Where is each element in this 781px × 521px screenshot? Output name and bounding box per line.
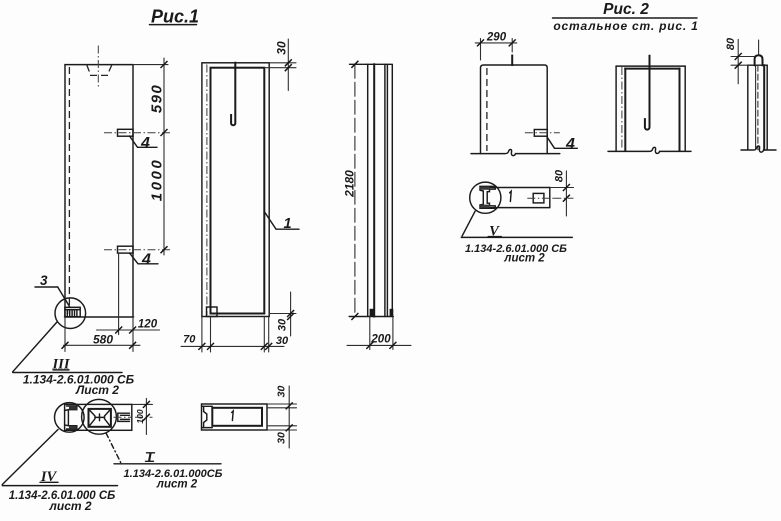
svg-text:80: 80 (554, 169, 566, 182)
svg-text:590: 590 (149, 84, 166, 113)
svg-text:30: 30 (276, 432, 288, 444)
svg-text:4: 4 (565, 136, 575, 153)
svg-text:Рис.1: Рис.1 (151, 7, 199, 27)
svg-text:580: 580 (93, 333, 113, 347)
svg-text:1000: 1000 (149, 158, 166, 201)
svg-text:30: 30 (275, 41, 289, 55)
svg-text:Лист 2: Лист 2 (75, 383, 119, 397)
svg-text:Рис. 2: Рис. 2 (603, 1, 649, 18)
svg-text:70: 70 (183, 334, 196, 346)
svg-text:лист 2: лист 2 (48, 499, 91, 513)
svg-text:290: 290 (486, 32, 507, 44)
svg-text:30: 30 (276, 335, 289, 347)
svg-text:80: 80 (725, 37, 737, 50)
svg-text:лист 2: лист 2 (503, 253, 545, 265)
svg-text:лист 2: лист 2 (156, 479, 198, 491)
svg-text:остальное ст. рис. 1: остальное ст. рис. 1 (553, 19, 698, 33)
svg-text:2180: 2180 (343, 170, 357, 198)
svg-text:30: 30 (277, 318, 289, 331)
svg-text:1: 1 (283, 216, 291, 232)
svg-text:100: 100 (135, 409, 145, 423)
svg-text:30: 30 (276, 386, 288, 398)
svg-text:4: 4 (140, 135, 150, 152)
svg-text:4: 4 (141, 252, 151, 269)
svg-text:3: 3 (40, 273, 48, 288)
svg-text:200: 200 (370, 334, 391, 346)
svg-text:120: 120 (138, 319, 158, 331)
